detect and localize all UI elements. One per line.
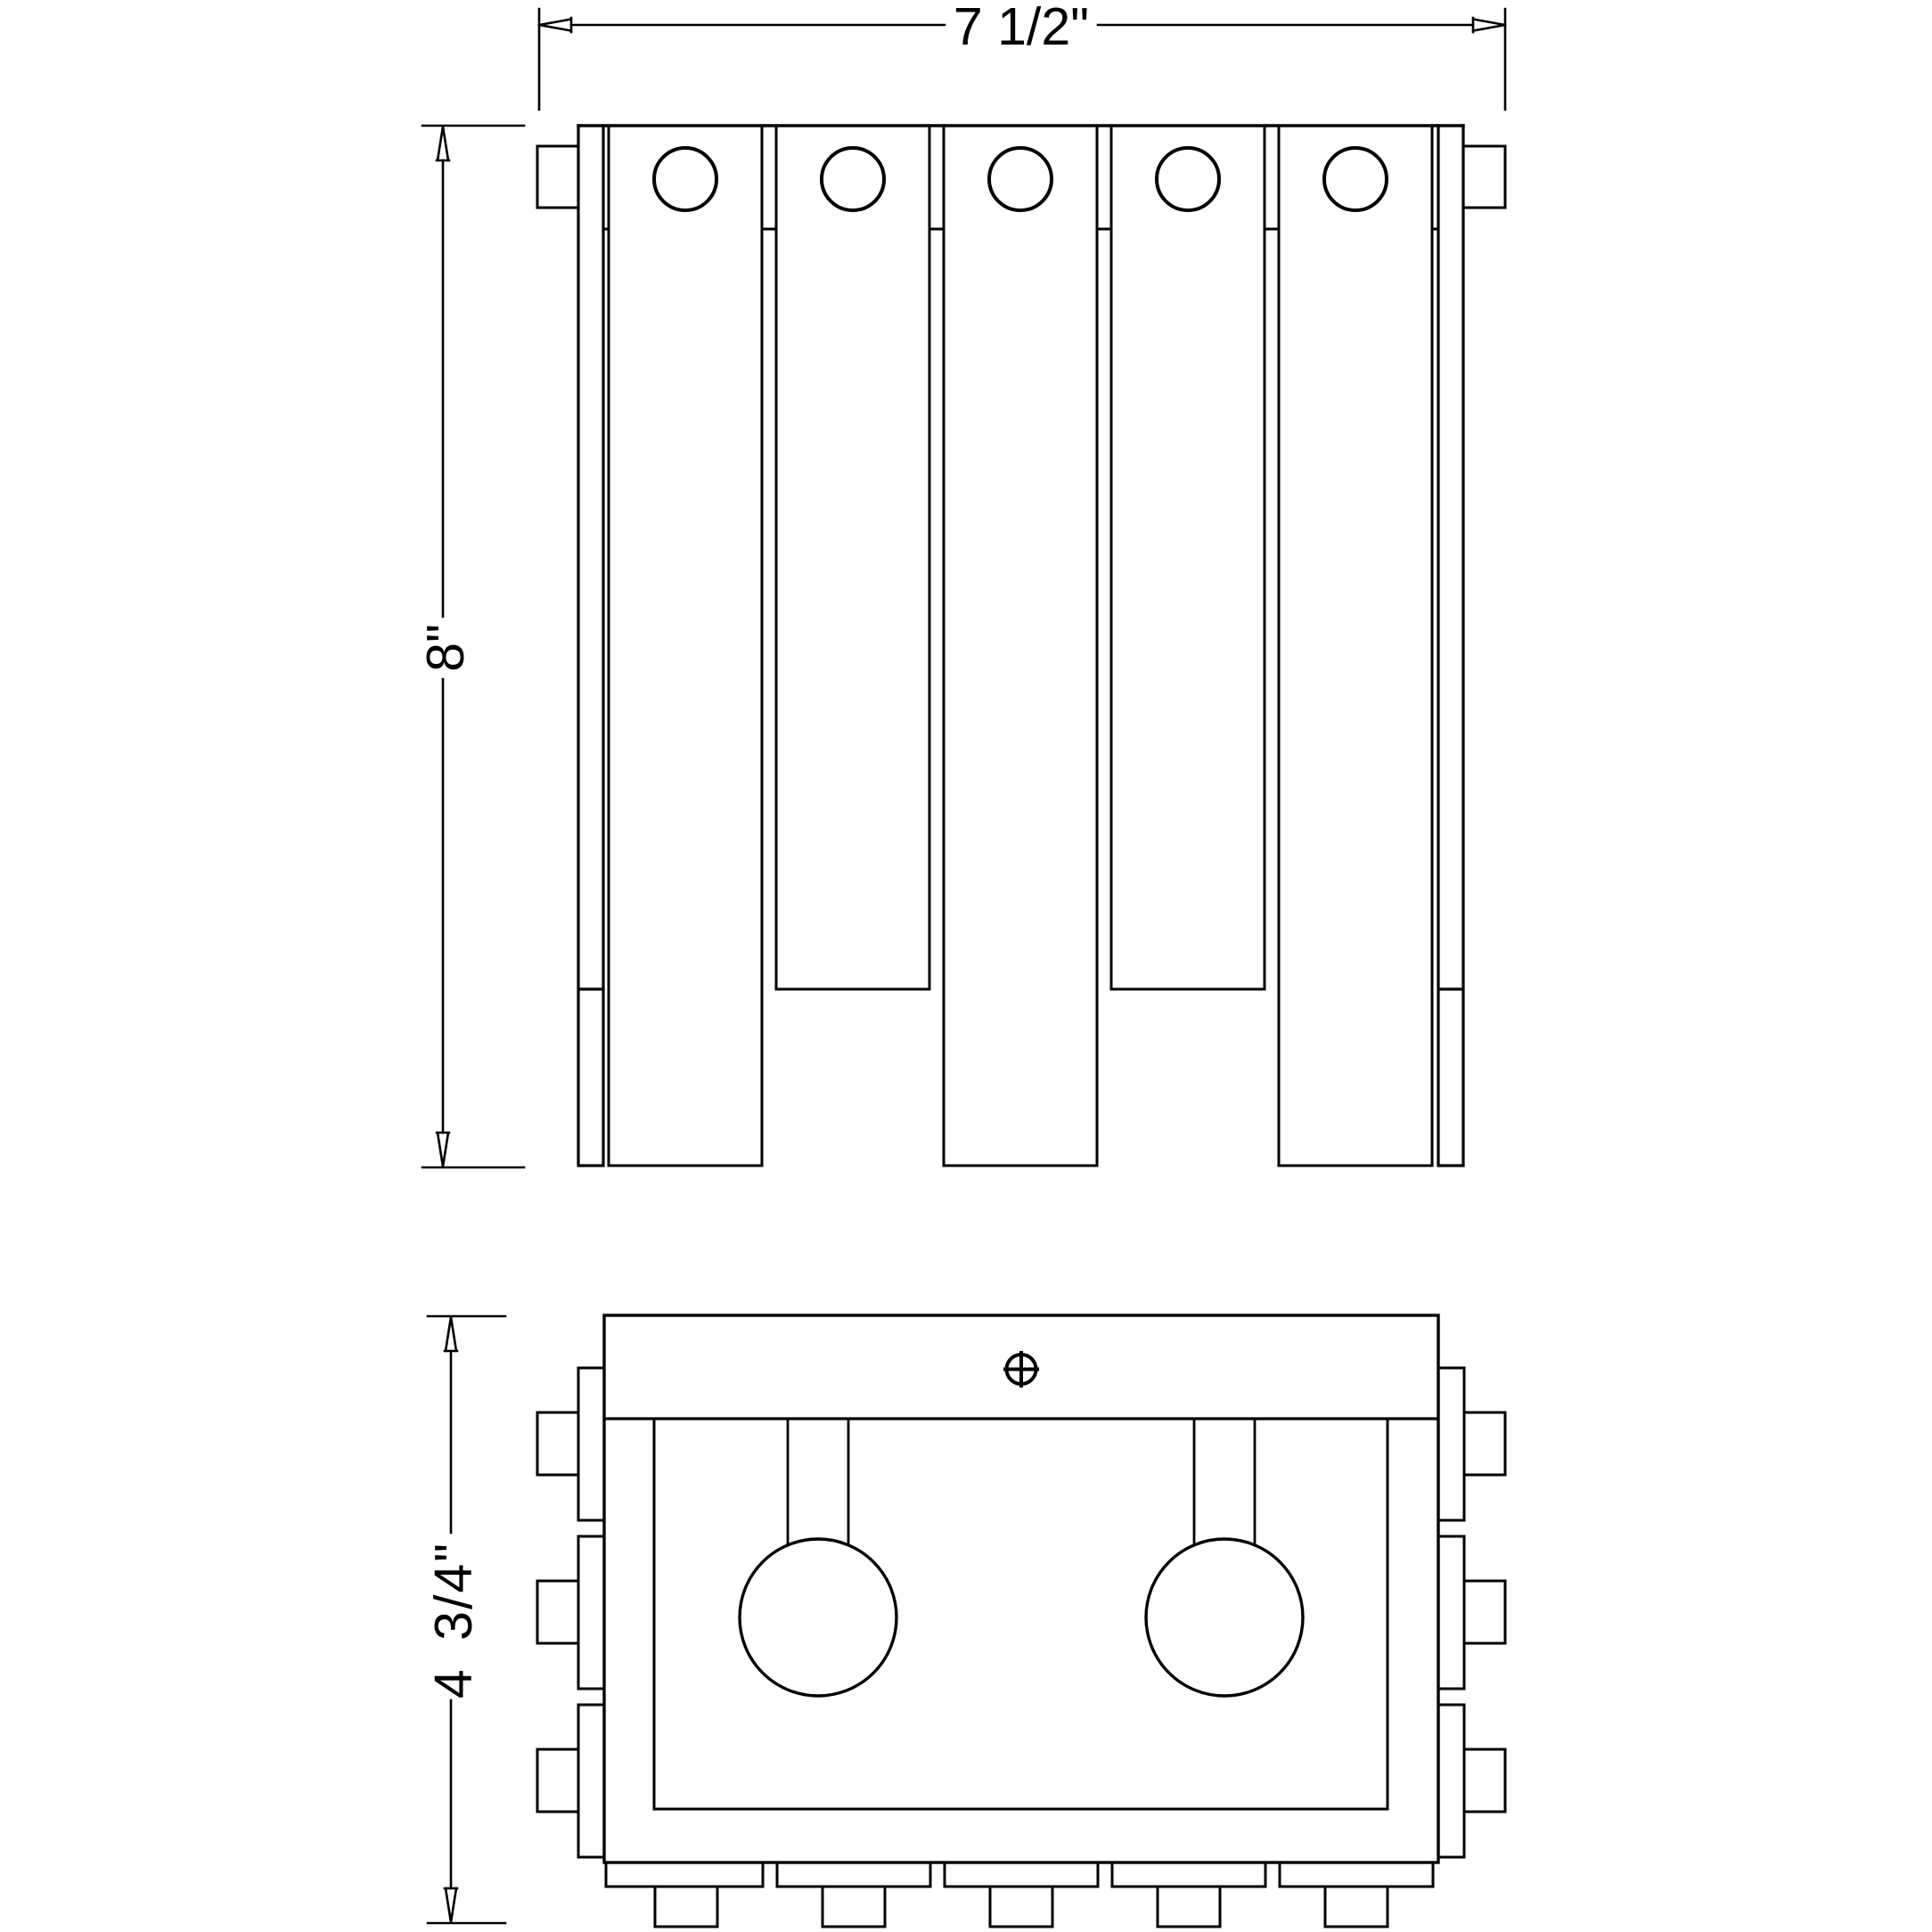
svg-text:7 1/2": 7 1/2" [954, 0, 1089, 56]
svg-text:4 3/4": 4 3/4" [424, 1542, 483, 1699]
svg-text:8": 8" [416, 624, 475, 672]
